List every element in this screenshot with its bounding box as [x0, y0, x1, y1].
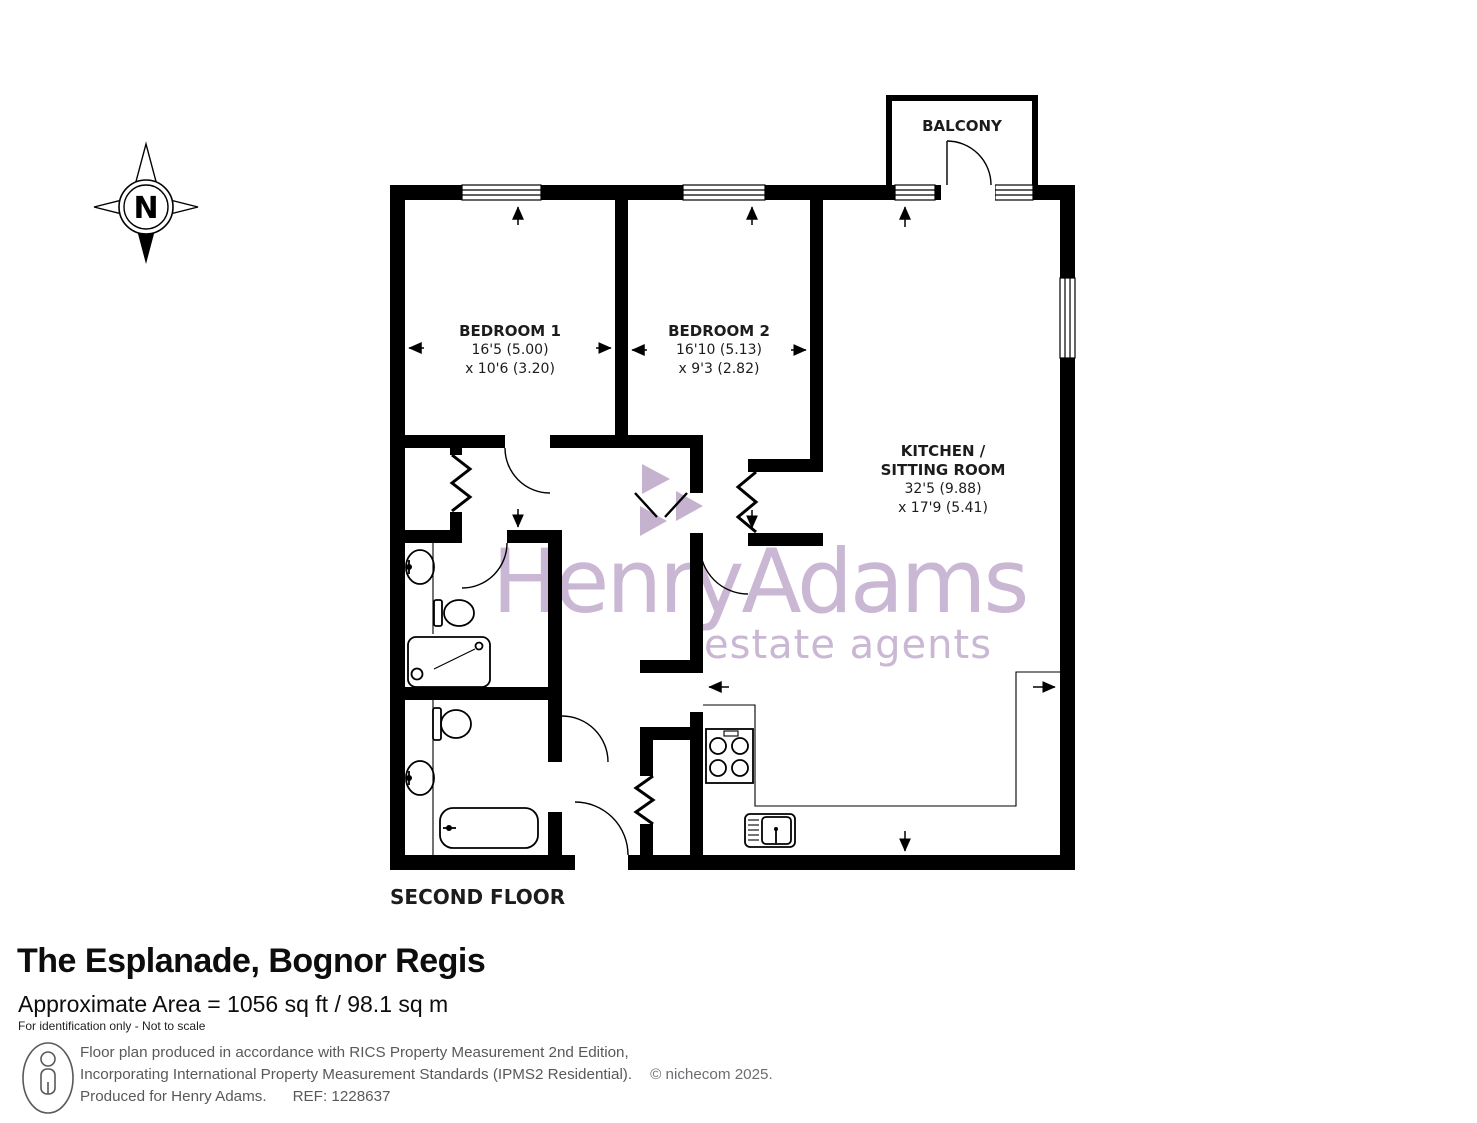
interior-walls: [390, 200, 823, 855]
watermark: HenryAdams estate agents: [492, 530, 1026, 668]
compass-north-label: N: [133, 191, 158, 226]
room-dimensions: 32'5 (9.88): [881, 480, 1006, 499]
room-dimensions: 16'10 (5.13): [668, 341, 770, 360]
kitchen-counter: [703, 672, 1060, 806]
room-name: BEDROOM 1: [459, 322, 561, 341]
hall-cupboard-bifold: [636, 776, 653, 824]
shower-icon: [408, 637, 490, 687]
footer-line-2: Incorporating International Property Mea…: [80, 1064, 773, 1086]
watermark-tagline: estate agents: [704, 622, 992, 668]
door-openings: [575, 184, 995, 871]
disclaimer-text: For identification only - Not to scale: [18, 1019, 205, 1033]
ensuite-fixtures: [406, 543, 490, 687]
room-label-bedroom2: BEDROOM 2 16'10 (5.13) x 9'3 (2.82): [668, 322, 770, 378]
room-label-kitchen-sitting-room: KITCHEN / SITTING ROOM 32'5 (9.88) x 17'…: [881, 442, 1006, 517]
room-name: KITCHEN /: [881, 442, 1006, 461]
bedroom1-door: [505, 448, 550, 493]
hob-icon: [706, 729, 753, 783]
footer-line-1: Floor plan produced in accordance with R…: [80, 1042, 773, 1064]
dimension-arrows: [409, 207, 1055, 851]
basin-icon: [406, 550, 434, 584]
window-sitting-room-east: [1060, 278, 1075, 358]
room-dimensions: 16'5 (5.00): [459, 341, 561, 360]
floorplan-page: HenryAdams estate agents: [0, 0, 1477, 1123]
window-bedroom1: [462, 185, 541, 200]
sink-icon: [745, 814, 795, 847]
copyright-text: © nichecom 2025.: [650, 1066, 773, 1083]
room-name: SITTING ROOM: [881, 461, 1006, 480]
window-bedroom2: [683, 185, 765, 200]
room-name: BALCONY: [922, 117, 1002, 136]
room-label-bedroom1: BEDROOM 1 16'5 (5.00) x 10'6 (3.20): [459, 322, 561, 378]
room-name: BEDROOM 2: [668, 322, 770, 341]
toilet-icon: [434, 600, 474, 626]
room-dimensions: x 9'3 (2.82): [668, 360, 770, 379]
balcony-door: [947, 141, 991, 185]
person-icon: [20, 1040, 76, 1116]
bedroom1-wardrobe-bifold: [452, 455, 470, 511]
bathroom-fixtures: [406, 700, 538, 855]
reference-number: REF: 1228637: [293, 1088, 391, 1105]
footer-note: Floor plan produced in accordance with R…: [80, 1042, 773, 1108]
room-dimensions: x 10'6 (3.20): [459, 360, 561, 379]
bathroom-door: [562, 716, 608, 762]
footer-line-3: Produced for Henry Adams.REF: 1228637: [80, 1086, 773, 1108]
floor-label: SECOND FLOOR: [390, 885, 565, 909]
page-title: The Esplanade, Bognor Regis: [17, 942, 485, 981]
area-text: Approximate Area = 1056 sq ft / 98.1 sq …: [18, 991, 448, 1018]
window-balcony-left: [895, 185, 935, 200]
window-balcony-right: [995, 185, 1033, 200]
basin-icon: [406, 761, 434, 795]
bathtub-icon: [440, 808, 538, 848]
kitchen-fixtures: [703, 672, 1060, 847]
produced-for-text: Produced for Henry Adams.: [80, 1088, 267, 1105]
room-label-balcony: BALCONY: [922, 117, 1002, 136]
footer-line-2-text: Incorporating International Property Mea…: [80, 1066, 632, 1083]
entrance-door: [575, 802, 628, 855]
bedroom2-wardrobe-bifold: [738, 472, 756, 532]
compass-icon: N: [94, 144, 198, 264]
room-dimensions: x 17'9 (5.41): [881, 499, 1006, 518]
toilet-icon: [433, 708, 471, 740]
